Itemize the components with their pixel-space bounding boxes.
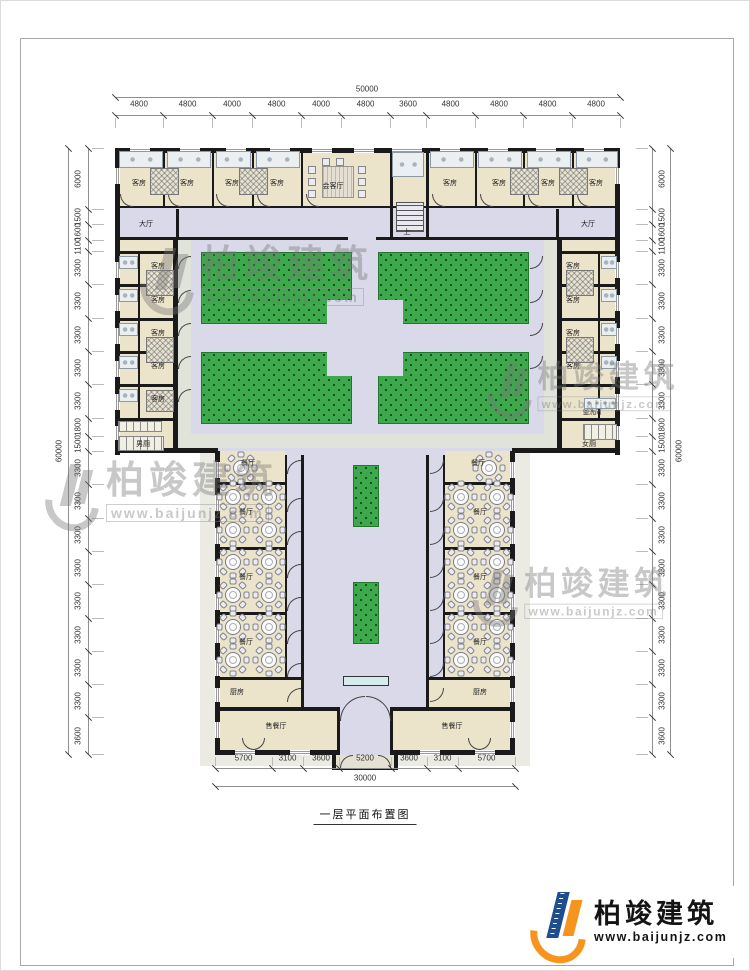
dim-label: 1100 [658,237,667,254]
bathroom-fixtures [601,256,617,269]
room-label-womens: 女厕 [582,439,596,449]
courtyard-walkway [191,434,544,448]
room-label-guest: 客房 [566,295,580,305]
dim-label: 1800 [658,418,667,436]
bathroom-fixtures [256,151,300,168]
room-label-wash: 盥洗间 [583,408,601,417]
dim-extension [515,757,516,766]
dim-extension [92,318,104,319]
dim-label: 1500 [74,435,83,453]
dim-extension [636,551,648,552]
dim-extension [92,651,104,652]
dim-label: 5700 [478,754,496,763]
dim-extension [636,717,648,718]
dim-label: 1800 [74,418,83,436]
room-label-dining: 餐厅 [241,458,255,468]
dim-extension [636,418,648,419]
dim-extension [636,436,648,437]
wall [556,209,559,237]
window [215,462,220,478]
dining-table [480,513,514,547]
wall [138,254,140,418]
planter [353,582,379,644]
dim-label: 3600 [312,754,330,763]
brand-logo-icon [534,890,588,954]
dim-label: 3300 [74,559,83,577]
dim-label: 4800 [179,100,197,109]
dim-label: 3300 [74,459,83,477]
room-label-guest: 客房 [589,178,603,188]
dim-label: 3300 [658,692,667,710]
room-label-dining: 餐厅 [471,458,485,468]
dim-extension [341,118,342,128]
chair [336,158,344,166]
top-corridor-floor [115,206,620,240]
dim-extension [636,518,648,519]
dim-label: 3600 [400,754,418,763]
room-label-dining: 餐厅 [473,572,487,582]
bathroom-fixtures [119,256,138,269]
chair [322,158,330,166]
dim-label: 4800 [490,100,508,109]
dim-extension [636,584,648,585]
dim-extension [391,757,392,766]
dim-label: 3300 [658,326,667,344]
dim-extension [523,118,524,128]
dim-extension [215,757,216,766]
wall [115,318,175,321]
dim-label: 3100 [279,754,297,763]
dim-extension [92,518,104,519]
room-label-guest: 客房 [225,178,239,188]
dim-label: 3300 [74,526,83,544]
dim-extension [92,684,104,685]
dining-table [252,578,286,612]
dining-table [252,545,286,579]
room-label-guest: 客房 [132,178,146,188]
bathroom-fixtures [216,151,251,168]
dining-table [216,513,250,547]
dim-label: 3300 [74,626,83,644]
dim-extension [92,209,104,210]
room-label-guest: 客房 [151,361,165,371]
dim-extension [92,717,104,718]
dim-extension [427,757,428,766]
dining-table [216,578,250,612]
dim-extension [636,651,648,652]
room-label-guest: 客房 [566,261,580,271]
dim-label: 3300 [658,359,667,377]
window [510,462,515,478]
wall [301,455,304,710]
dim-label: 3300 [74,292,83,310]
dim-label: 4800 [587,100,605,109]
room-label-dining: 餐厅 [473,507,487,517]
dim-label: 3300 [658,626,667,644]
dim-extension [92,754,104,755]
window [115,168,120,184]
bed [146,337,174,363]
window [312,148,332,153]
dim-extension [636,754,648,755]
wall [115,206,620,208]
dim-label: 5700 [235,754,253,763]
room-label-guest: 客房 [151,295,165,305]
dining-table [444,578,478,612]
dim-label: 3300 [658,459,667,477]
dim-extension [115,118,116,128]
wall [215,677,304,680]
dim-extension [636,684,648,685]
dim-label: 4800 [539,100,557,109]
kitchen-left-floor [215,677,301,710]
wall [512,448,560,453]
dim-extension [636,351,648,352]
wall [390,707,515,711]
wall [301,153,303,206]
courtyard-opening [348,237,376,240]
dim-line [115,97,620,98]
dim-line [215,768,515,769]
dim-extension [92,484,104,485]
room-label-guest: 客房 [151,261,165,271]
dining-table [480,643,514,677]
urinals [118,421,162,432]
wall [598,254,600,418]
wall [426,677,515,680]
bathroom-fixtures [430,151,474,168]
brand-name: 柏竣建筑 [594,900,727,930]
dim-extension [163,118,164,128]
dim-label: 1500 [658,435,667,453]
bathroom-fixtures [119,356,138,369]
dim-label: 3300 [658,392,667,410]
brand-logo: 柏竣建筑 www.baijunjz.com [534,886,739,958]
dim-extension [92,436,104,437]
dim-extension [303,757,304,766]
room-label-up: 上 [404,227,411,237]
room-label-hall: 大厅 [581,219,595,229]
dim-label: 3100 [434,754,452,763]
dim-label: 3300 [74,492,83,510]
room-label-dining: 餐厅 [239,637,253,647]
wall [426,455,429,710]
wall [176,209,179,237]
dim-label: 3300 [658,259,667,277]
dim-label: 3300 [74,259,83,277]
dim-extension [339,757,340,766]
dim-extension [636,618,648,619]
wall [390,707,393,755]
wall [212,153,214,206]
chair [358,190,366,198]
dim-extension [636,384,648,385]
room-label-hall: 大厅 [139,219,153,229]
dim-extension [92,551,104,552]
bathroom-fixtures [392,152,424,177]
dining-table [252,480,286,514]
wall [426,150,429,237]
dining-table [252,643,286,677]
bathroom-fixtures [119,323,138,336]
dim-extension [636,451,648,452]
dim-label: 4800 [130,100,148,109]
window [354,148,374,153]
dim-label: 4000 [223,100,241,109]
bathroom-fixtures [601,356,617,369]
dim-extension [390,118,391,128]
dim-extension [636,209,648,210]
wall [560,384,620,387]
dim-extension [92,584,104,585]
window [510,688,515,702]
wall [560,418,620,421]
dim-extension [92,148,104,149]
room-label-dining: 餐厅 [473,637,487,647]
window [215,722,220,738]
dim-label: 3300 [658,592,667,610]
dining-table [480,578,514,612]
room-label-mens: 男厕 [136,439,150,449]
dim-label: 4800 [268,100,286,109]
dim-label: 3600 [658,727,667,745]
room-label-guest: 客房 [566,361,580,371]
dim-extension [92,418,104,419]
bathroom-fixtures [119,151,163,168]
dim-label: 5200 [356,754,374,763]
dim-label: 4000 [312,100,330,109]
dim-extension [92,384,104,385]
dim-extension [636,148,648,149]
dim-label: 3300 [74,592,83,610]
wall [560,318,620,321]
dim-label: 3300 [74,692,83,710]
bed [566,337,594,363]
dining-table [444,643,478,677]
dim-label: 3300 [658,526,667,544]
dim-extension [252,118,253,128]
dim-extension [92,240,104,241]
chair [308,166,316,174]
bed [510,168,539,195]
dim-label: 6000 [74,170,83,188]
reception-desk [343,676,389,686]
dim-label: 60000 [55,440,64,462]
dim-extension [572,118,573,128]
bed [559,168,588,195]
dim-label: 3300 [658,559,667,577]
wall [215,707,337,711]
dim-label: 3300 [658,292,667,310]
dim-extension [458,757,459,766]
dim-extension [301,118,302,128]
dim-extension [475,118,476,128]
bathroom-fixtures [601,323,617,336]
wall [337,707,340,755]
room-label-kitchen: 厨房 [230,687,244,697]
dim-label: 3300 [658,492,667,510]
room-label-guest: 客房 [443,178,457,188]
bathroom-fixtures [601,289,617,302]
courtyard-walkway [178,240,191,451]
wall [475,153,477,206]
planter [353,465,379,527]
dim-label: 4800 [357,100,375,109]
floor-plan: 客房客房客房客房客房客房客房客房会客厅上大厅大厅客房客房客房客房客房客房客房客房… [0,0,750,971]
room-label-sales: 售餐厅 [442,721,463,731]
bathroom-fixtures [527,151,571,168]
dim-extension [636,318,648,319]
chair [358,166,366,174]
dim-label: 4800 [442,100,460,109]
bed [150,168,179,195]
wall [178,448,218,453]
sidewalk [515,451,530,763]
drawing-title: 一层平面布置图 [314,806,417,825]
room-label-guest: 客房 [180,178,194,188]
brand-url: www.baijunjz.com [594,930,727,944]
dim-line [115,115,620,116]
window [215,688,220,702]
dim-extension [92,251,104,252]
chair [308,178,316,186]
dim-label: 1100 [74,237,83,254]
wall [115,251,175,254]
sidewalk [200,451,215,763]
dim-line [670,148,671,754]
wc-stalls [583,424,617,440]
dim-extension [636,484,648,485]
dim-extension [92,224,104,225]
room-label-guest: 客房 [566,328,580,338]
dim-extension [272,757,273,766]
dim-label: 50000 [356,85,378,94]
bathroom-fixtures [167,151,211,168]
dim-extension [92,618,104,619]
dim-label: 3300 [658,659,667,677]
dim-label: 3600 [74,727,83,745]
dim-label: 3300 [74,326,83,344]
dim-extension [636,251,648,252]
dim-label: 3300 [74,392,83,410]
bathroom-fixtures [119,389,138,402]
room-label-dining: 餐厅 [239,572,253,582]
dining-table [216,643,250,677]
room-label-guest: 客房 [151,328,165,338]
dim-label: 3600 [399,100,417,109]
bathroom-fixtures [576,151,618,168]
bed [566,270,594,296]
dim-extension [620,118,621,128]
dim-extension [92,351,104,352]
chair [358,178,366,186]
dining-table [444,513,478,547]
dining-table [252,610,286,644]
dim-label: 6000 [658,170,667,188]
bed [146,270,174,296]
room-label-guest: 客房 [151,394,165,404]
room-label-kitchen: 厨房 [473,687,487,697]
bathroom-fixtures [119,289,138,302]
dim-label: 30000 [354,774,376,783]
dim-label: 60000 [675,440,684,462]
room-label-reception: 会客厅 [323,181,344,191]
wall [560,251,620,254]
room-label-sales: 售餐厅 [266,721,287,731]
window [510,722,515,738]
room-label-dining: 餐厅 [239,507,253,517]
wall [115,384,175,387]
dim-label: 3300 [74,359,83,377]
window [615,168,620,184]
drawing-sheet: 客房客房客房客房客房客房客房客房会客厅上大厅大厅客房客房客房客房客房客房客房客房… [0,0,750,971]
dim-label: 3300 [74,659,83,677]
chair [308,190,316,198]
dim-line [215,786,515,787]
dim-extension [426,118,427,128]
dim-extension [636,284,648,285]
courtyard-walkway [544,240,557,451]
bathroom-fixtures [478,151,522,168]
dim-extension [92,451,104,452]
watermark-text: 柏竣建筑www.baijunjz.com [524,568,670,620]
bed [239,168,268,195]
dim-extension [636,224,648,225]
dim-extension [212,118,213,128]
dining-table [252,513,286,547]
room-label-guest: 客房 [541,178,555,188]
room-label-guest: 客房 [270,178,284,188]
dim-line [68,148,69,754]
dim-extension [636,240,648,241]
dim-extension [92,284,104,285]
room-label-guest: 客房 [492,178,506,188]
